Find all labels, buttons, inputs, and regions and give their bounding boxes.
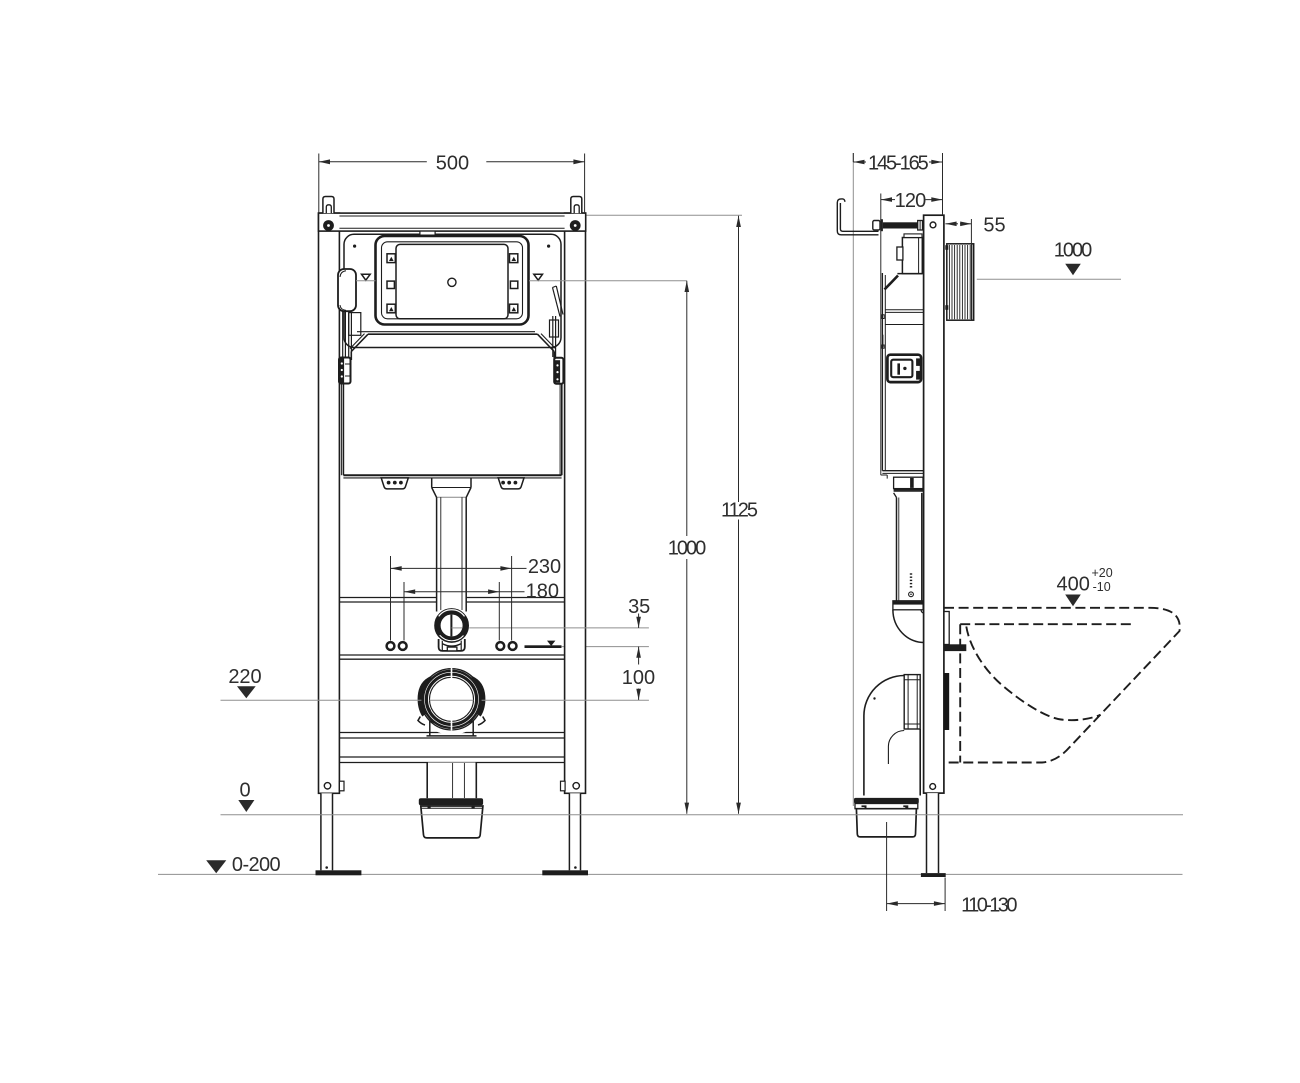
svg-text:-10: -10: [1093, 580, 1111, 594]
svg-text:230: 230: [528, 556, 561, 578]
svg-text:1000: 1000: [668, 538, 706, 560]
svg-text:0-200: 0-200: [232, 854, 281, 876]
svg-text:220: 220: [228, 666, 261, 688]
svg-text:1000: 1000: [1054, 240, 1092, 262]
svg-text:180: 180: [526, 581, 559, 603]
svg-text:35: 35: [628, 596, 650, 618]
svg-text:120: 120: [895, 190, 926, 212]
svg-text:1125: 1125: [721, 500, 758, 522]
svg-text:145-165: 145-165: [868, 152, 929, 174]
svg-text:+20: +20: [1092, 566, 1113, 580]
svg-text:100: 100: [622, 667, 655, 689]
svg-text:55: 55: [983, 215, 1005, 237]
svg-text:500: 500: [436, 153, 469, 175]
svg-text:110-130: 110-130: [961, 895, 1017, 917]
svg-text:400: 400: [1057, 574, 1090, 596]
svg-text:0: 0: [239, 780, 250, 802]
